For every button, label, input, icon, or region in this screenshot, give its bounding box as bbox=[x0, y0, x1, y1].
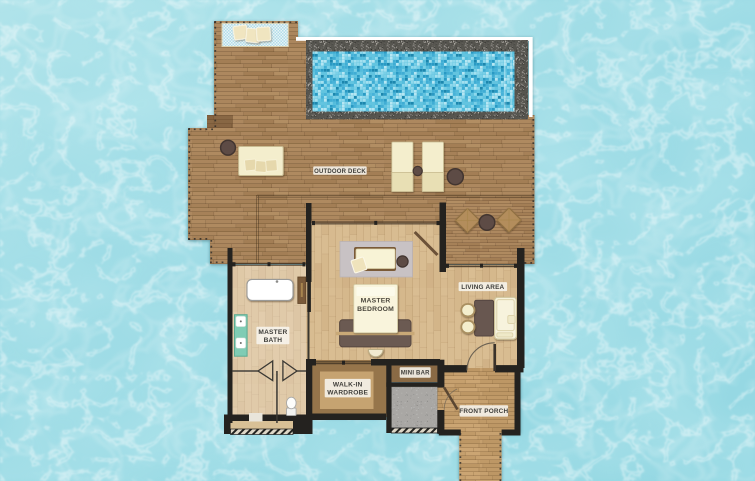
svg-text:FRONT PORCH: FRONT PORCH bbox=[459, 408, 508, 415]
svg-text:MINI BAR: MINI BAR bbox=[401, 371, 430, 377]
svg-text:WALK-IN: WALK-IN bbox=[333, 382, 363, 389]
svg-text:MASTER: MASTER bbox=[361, 297, 391, 304]
svg-text:BATH: BATH bbox=[264, 337, 283, 344]
svg-text:LIVING AREA: LIVING AREA bbox=[461, 284, 504, 291]
svg-text:MASTER: MASTER bbox=[258, 329, 287, 336]
svg-text:OUTDOOR DECK: OUTDOOR DECK bbox=[314, 169, 366, 175]
svg-text:WARDROBE: WARDROBE bbox=[327, 390, 368, 397]
svg-text:BEDROOM: BEDROOM bbox=[357, 306, 394, 313]
